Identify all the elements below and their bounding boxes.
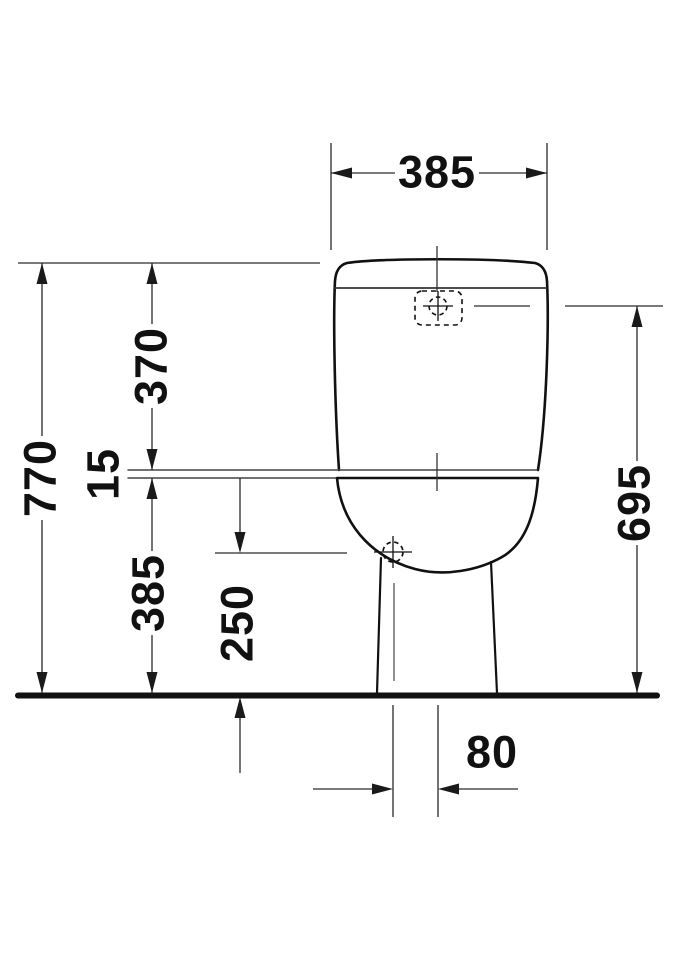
outlet-cross-lines	[374, 536, 412, 568]
pedestal-left-edge	[377, 558, 381, 693]
dim-80-extension-lines	[393, 705, 438, 817]
flush-button-cross-lines	[423, 291, 453, 321]
bowl-outline	[337, 478, 538, 572]
technical-drawing-canvas: 385 770 370 15 385 250 695 80	[0, 0, 675, 960]
dim-label-overall-width: 385	[395, 150, 479, 195]
dim-label-cistern-height: 370	[129, 324, 174, 408]
dim-label-button-level-height: 695	[612, 461, 657, 545]
dim-label-overall-height: 770	[18, 436, 63, 520]
dim-label-bowl-height: 385	[126, 551, 171, 635]
pedestal-right-edge	[491, 562, 497, 693]
dim-label-joint-gap: 15	[81, 445, 126, 503]
dim-label-outlet-height: 250	[215, 581, 260, 665]
dim-label-outlet-offset: 80	[463, 730, 521, 775]
